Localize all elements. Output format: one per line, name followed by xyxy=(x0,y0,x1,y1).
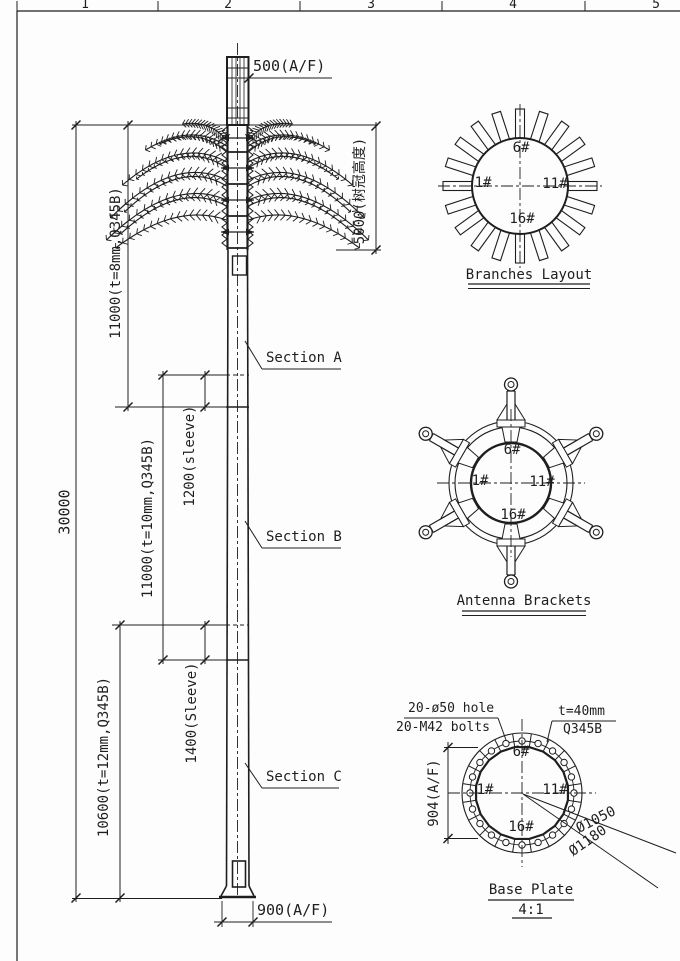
dim-crown-height: 5000(树冠高度) xyxy=(353,138,367,245)
dim-sleeve-1: 1200(sleeve) xyxy=(183,405,197,506)
dim-overall-height: 30000 xyxy=(58,489,73,534)
branches-layout-drawing xyxy=(438,104,602,289)
branch-label-11: 11# xyxy=(542,177,567,191)
branch-label-1: 1# xyxy=(475,176,492,190)
monopole-elevation xyxy=(219,43,256,897)
dim-top-across-flats: 500(A/F) xyxy=(253,59,325,74)
note-material: Q345B xyxy=(563,723,602,736)
branches-layout-title: Branches Layout xyxy=(466,268,592,282)
branch-label-16: 16# xyxy=(509,212,534,226)
plate-label-6: 6# xyxy=(513,745,530,759)
ruler-number-4: 4 xyxy=(509,0,517,11)
ruler-number-5: 5 xyxy=(652,0,660,11)
dim-base-across-flats: 900(A/F) xyxy=(257,903,329,918)
ruler-number-2: 2 xyxy=(224,0,232,11)
section-a-label: Section A xyxy=(266,351,342,365)
bracket-label-1: 1# xyxy=(472,474,489,488)
plate-label-1: 1# xyxy=(477,783,494,797)
bracket-label-6: 6# xyxy=(504,443,521,457)
bracket-label-11: 11# xyxy=(529,475,554,489)
note-bolts: 20-M42 bolts xyxy=(396,721,490,734)
base-plate-scale: 4:1 xyxy=(518,903,543,917)
base-plate-title: Base Plate xyxy=(489,883,573,897)
dim-sleeve-2: 1400(Sleeve) xyxy=(185,662,199,763)
section-b-label: Section B xyxy=(266,530,342,544)
dim-segment-b: 11000(t=10mm,Q345B) xyxy=(141,438,155,598)
dim-plate-across-flats: 904(A/F) xyxy=(427,759,441,826)
branch-label-6: 6# xyxy=(513,141,530,155)
dim-segment-a: 11000(t=8mm,Q345B) xyxy=(109,187,123,339)
dim-segment-c: 10600(t=12mm,Q345B) xyxy=(97,677,111,837)
note-hole: 20-ø50 hole xyxy=(408,702,494,715)
bracket-label-16: 16# xyxy=(500,508,525,522)
plate-label-16: 16# xyxy=(508,820,533,834)
ruler-number-3: 3 xyxy=(367,0,375,11)
ruler-number-1: 1 xyxy=(81,0,89,11)
section-c-label: Section C xyxy=(266,770,342,784)
plate-label-11: 11# xyxy=(542,783,567,797)
drawing-sheet: 1 2 3 4 5 500(A/F) 5000(树冠高度) 11000(t=8m… xyxy=(0,0,680,961)
note-thickness: t=40mm xyxy=(558,705,605,718)
antenna-brackets-title: Antenna Brackets xyxy=(457,594,592,608)
antenna-brackets-drawing xyxy=(413,378,609,616)
